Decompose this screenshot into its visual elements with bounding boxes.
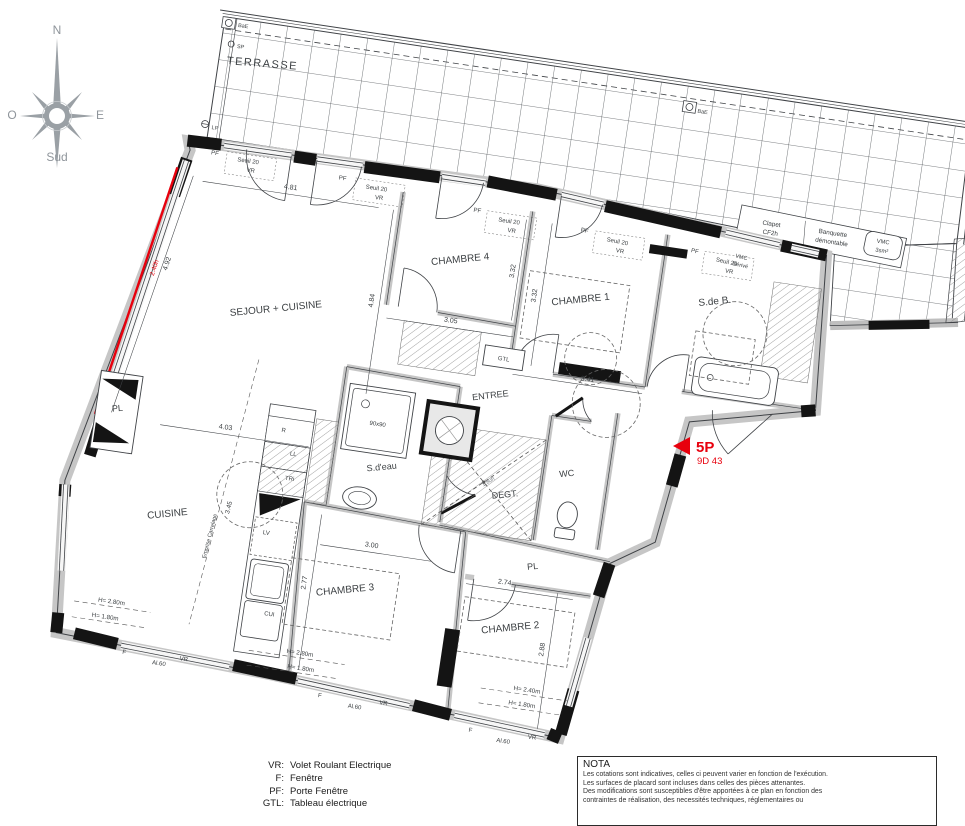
- plan-group: TERRASSESEJOUR + CUISINECHAMBRE 4CHAMBRE…: [35, 0, 965, 800]
- nota-line: Les cotations sont indicatives, celles c…: [583, 771, 931, 780]
- pf-label-2: PF: [338, 175, 347, 182]
- compass-east-label: E: [96, 108, 104, 122]
- legend-abbr: GTL:: [248, 798, 284, 811]
- legend-label: Volet Roulant Electrique: [290, 760, 391, 773]
- legend: VR:Volet Roulant ElectriqueF:FenêtrePF:P…: [248, 760, 391, 811]
- pf-label-3: PF: [473, 208, 482, 215]
- legend-label: Porte Fenêtre: [290, 786, 348, 799]
- lave-vaisselle-label: LV: [262, 530, 270, 537]
- sp-label: SP: [236, 44, 244, 51]
- pf-label-1: PF: [211, 150, 220, 157]
- floor-plan-drawing: TERRASSESEJOUR + CUISINECHAMBRE 4CHAMBRE…: [0, 0, 965, 800]
- placard-chambre2-label: PL: [527, 561, 539, 572]
- compass-west-label: O: [7, 108, 16, 122]
- compass-rose-icon: [20, 38, 95, 168]
- legend-label: Tableau électrique: [290, 798, 367, 811]
- allege-label-2: Al.60: [347, 704, 362, 712]
- legend-abbr: PF:: [248, 786, 284, 799]
- duct-water-heater: [421, 401, 478, 460]
- f-label-2: F: [318, 693, 323, 700]
- lp-icon: [201, 120, 209, 128]
- lot-ref-label: 9D 43: [697, 456, 722, 467]
- legend-row: GTL:Tableau électrique: [248, 798, 391, 811]
- nota-box: NOTA Les cotations sont indicatives, cel…: [577, 756, 937, 826]
- legend-row: PF:Porte Fenêtre: [248, 786, 391, 799]
- legend-label: Fenêtre: [290, 773, 323, 786]
- legend-abbr: VR:: [248, 760, 284, 773]
- f-label-3: F: [468, 728, 473, 735]
- f-label-1: F: [122, 650, 127, 657]
- wc-label: WC: [559, 468, 575, 479]
- legend-abbr: F:: [248, 773, 284, 786]
- compass-north-label: N: [53, 23, 62, 37]
- compass-south-label: Sud: [46, 150, 67, 164]
- allege-label-3: Al.60: [496, 738, 511, 746]
- lp-label: LP: [211, 125, 219, 132]
- vr-window-label-3: VR: [527, 735, 537, 742]
- vr-window-label-2: VR: [379, 700, 389, 707]
- lot-type-label: 5P: [696, 439, 714, 456]
- placard-west-label: PL: [111, 403, 123, 414]
- nota-title: NOTA: [583, 759, 931, 770]
- bae-icon-left: [222, 17, 236, 30]
- cooker: [240, 600, 283, 641]
- nota-line: contraintes de réalisation, des necessit…: [583, 797, 931, 806]
- nota-line: Des modifications sont susceptibles d'êt…: [583, 788, 931, 797]
- legend-row: VR:Volet Roulant Electrique: [248, 760, 391, 773]
- shower-90x90: [341, 383, 416, 458]
- nota-line: Les surfaces de placard sont incluses da…: [583, 780, 931, 789]
- legend-row: F:Fenêtre: [248, 773, 391, 786]
- bae-icon-right: [682, 101, 696, 114]
- allege-label-1: Al.60: [152, 660, 167, 668]
- floor-plan-page: { "colors": {"red":"#e8000d","line":"#3f…: [0, 0, 965, 800]
